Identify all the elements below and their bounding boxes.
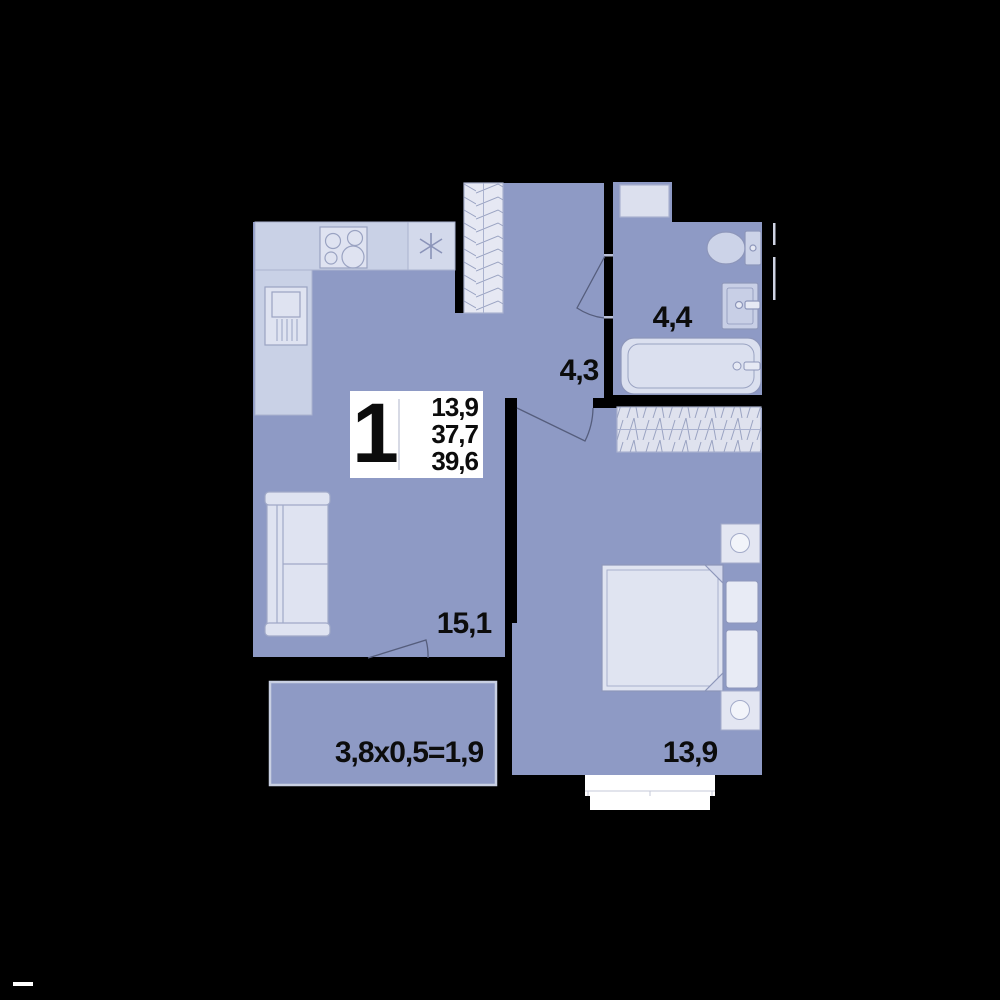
wardrobe-icon [617, 407, 761, 452]
room-label-kitchen-living: 15,1 [437, 607, 491, 641]
washing-machine-icon [620, 185, 669, 217]
floor-plan-graphic [0, 0, 1000, 1000]
fridge-icon [265, 287, 307, 345]
stove-icon [320, 227, 367, 268]
wall-edge-marks [773, 223, 776, 300]
wall-wardrobe-kitchen [455, 200, 464, 313]
unit-info-badge: 1 13,9 37,7 39,6 [350, 391, 483, 478]
area-value-living: 13,9 [431, 394, 478, 421]
bath-sink-icon [722, 283, 760, 329]
toilet-icon [707, 231, 761, 265]
rooms-count: 1 [350, 391, 398, 478]
bedroom-floor-notch [512, 623, 518, 775]
area-value-net: 37,7 [431, 421, 478, 448]
kitchen-sink-icon [408, 222, 455, 270]
area-value-total: 39,6 [431, 448, 478, 475]
door-jamb-tick [604, 254, 613, 257]
bathtub-icon [621, 338, 761, 394]
room-label-balcony: 3,8x0,5=1,9 [335, 736, 483, 770]
badge-areas: 13,9 37,7 39,6 [400, 391, 483, 478]
room-label-bedroom: 13,9 [663, 736, 717, 770]
room-label-hallway: 4,3 [560, 354, 599, 388]
window-icon [585, 775, 715, 810]
room-label-bathroom: 4,4 [653, 301, 692, 335]
door-jamb-tick [604, 316, 613, 319]
floor-areas [253, 182, 762, 785]
sofa-icon [265, 492, 330, 636]
bed-icon [602, 565, 723, 691]
bedroom-door-threshold [517, 396, 593, 410]
corner-dash [13, 982, 33, 986]
pillow-icon [726, 581, 758, 688]
wardrobe-icon [464, 183, 503, 313]
floor-plan-canvas: 4,3 4,4 15,1 13,9 3,8x0,5=1,9 1 13,9 37,… [0, 0, 1000, 1000]
